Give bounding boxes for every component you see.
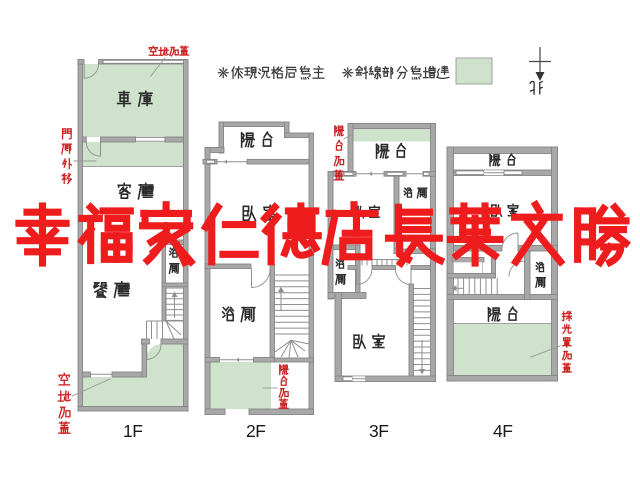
- svg-text:3F: 3F: [369, 421, 388, 441]
- svg-text:1F: 1F: [123, 421, 142, 441]
- svg-text:4F: 4F: [493, 421, 512, 441]
- svg-text:2F: 2F: [246, 421, 265, 441]
